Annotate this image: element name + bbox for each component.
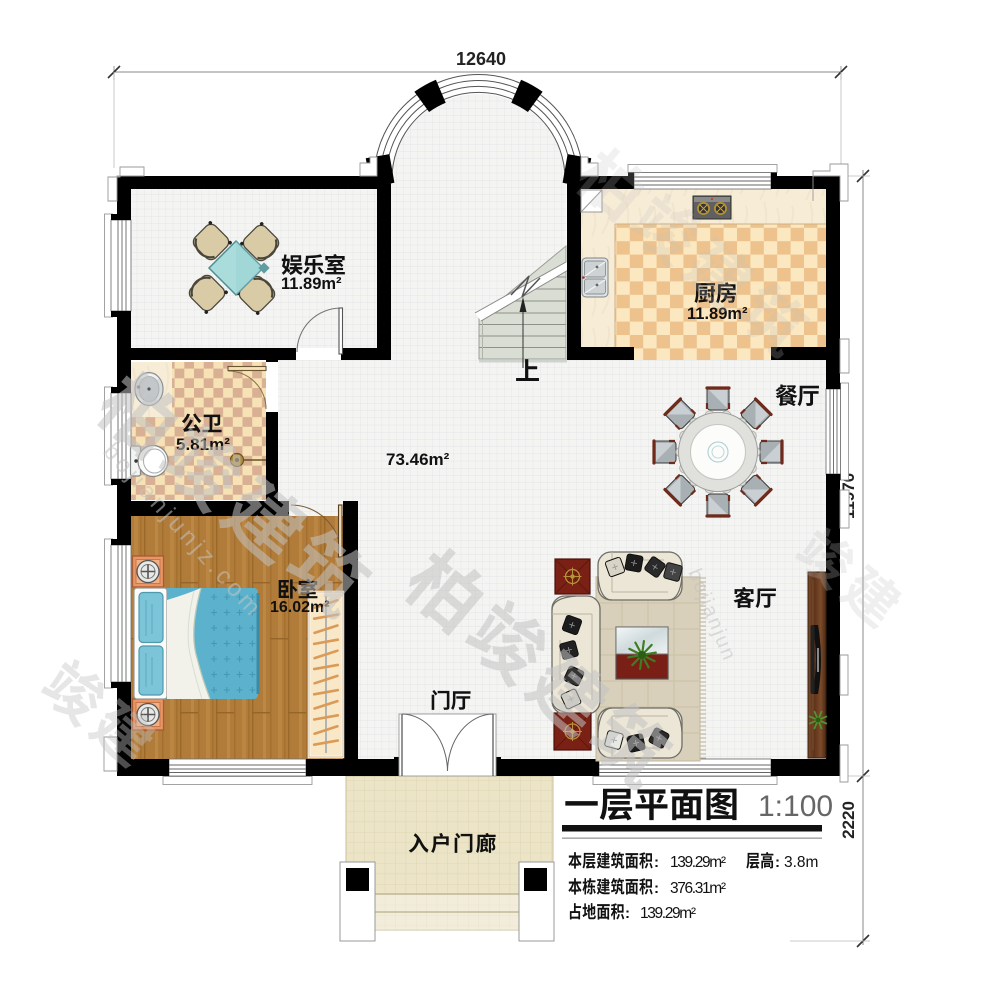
svg-text::: : (654, 880, 659, 897)
svg-text:16.02m²: 16.02m² (270, 599, 330, 616)
svg-text:139.29m²: 139.29m² (670, 854, 726, 871)
svg-text:2220: 2220 (839, 801, 858, 839)
svg-text:3.8m: 3.8m (784, 854, 818, 871)
svg-text::: : (625, 905, 630, 922)
svg-text:12640: 12640 (456, 49, 506, 69)
svg-text:73.46m²: 73.46m² (386, 450, 450, 469)
svg-text:11.89m²: 11.89m² (281, 275, 342, 293)
svg-text::: : (654, 854, 659, 871)
svg-text:376.31m²: 376.31m² (670, 880, 726, 897)
svg-text::: : (775, 854, 780, 871)
svg-text:139.29m²: 139.29m² (640, 905, 696, 922)
svg-text:1:100: 1:100 (758, 790, 833, 823)
